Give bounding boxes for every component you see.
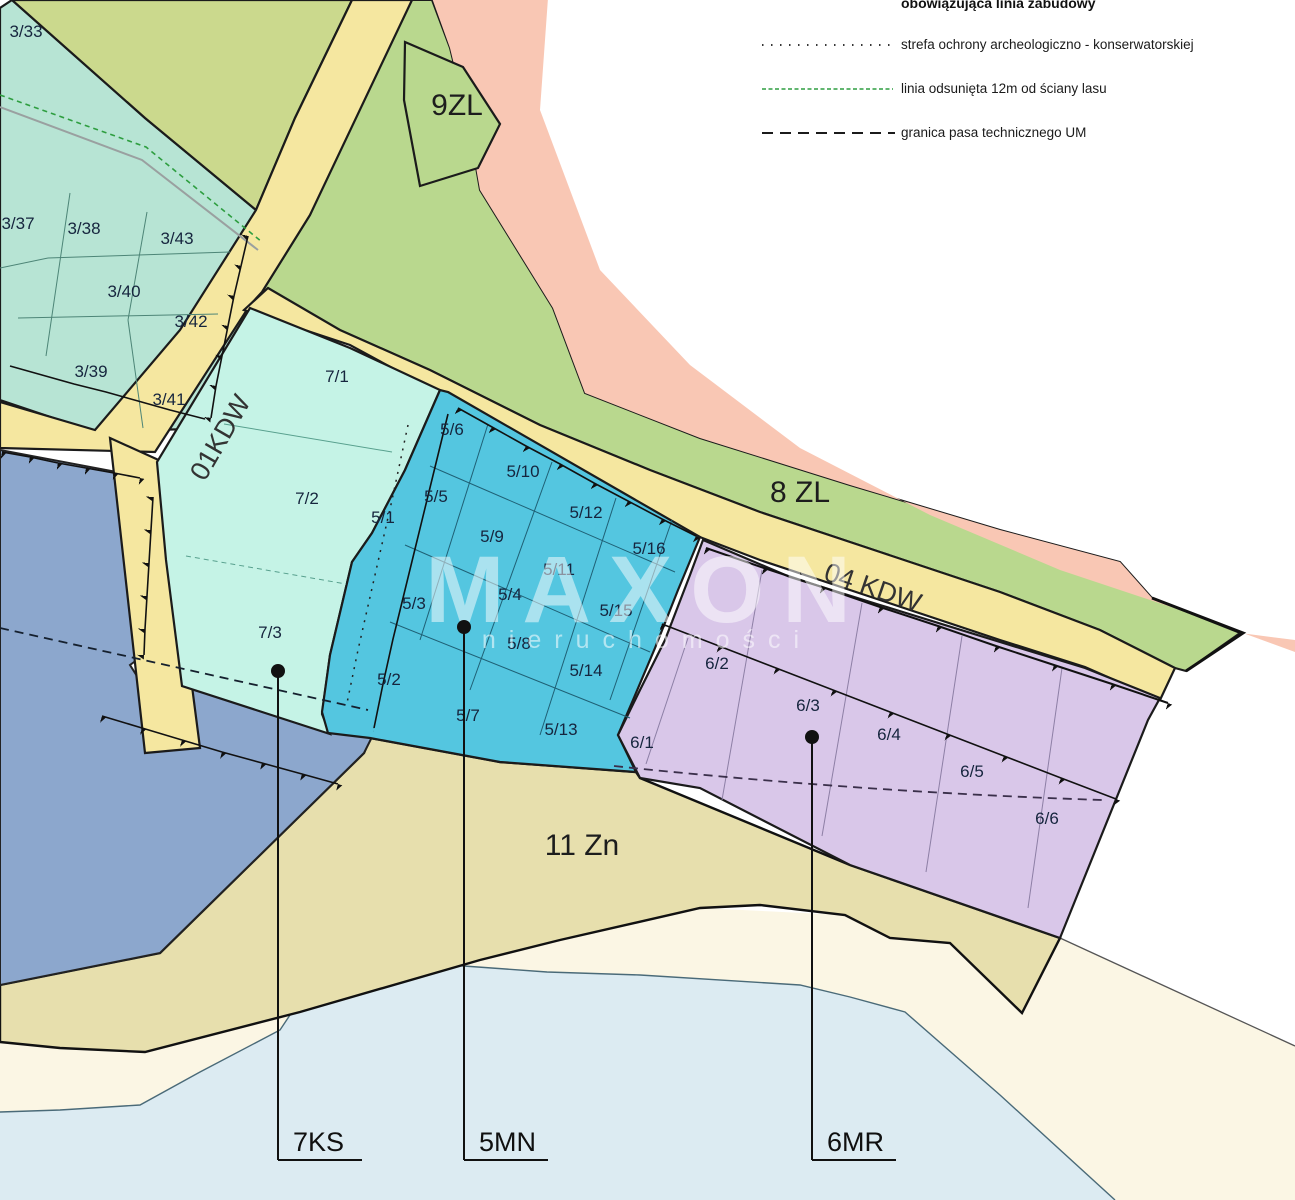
callout-dot (457, 620, 471, 634)
parcel-label: 5/12 (569, 503, 602, 522)
parcel-label: 5/1 (371, 508, 395, 527)
parcel-label: 7/1 (325, 367, 349, 386)
parcel-label: 3/42 (174, 312, 207, 331)
parcel-label: 6/5 (960, 762, 984, 781)
zone-label-9zl: 9ZL (431, 89, 483, 122)
parcel-label: 6/3 (796, 696, 820, 715)
watermark-subtitle: nieruchomości (482, 626, 812, 654)
parcel-label: 7/3 (258, 623, 282, 642)
parcel-label: 5/3 (402, 594, 426, 613)
parcel-label: 5/13 (544, 720, 577, 739)
parcel-label: 5/2 (377, 670, 401, 689)
parcel-label: 6/4 (877, 725, 901, 744)
parcel-label: 5/7 (456, 706, 480, 725)
zone-callout-label: 7KS (293, 1127, 344, 1157)
parcel-label: 6/6 (1035, 809, 1059, 828)
parcel-label: 7/2 (295, 489, 319, 508)
parcel-label: 6/2 (705, 654, 729, 673)
zone-callout-label: 6MR (827, 1127, 884, 1157)
parcel-label: 6/1 (630, 733, 654, 752)
zone-callout-label: 5MN (479, 1127, 536, 1157)
parcel-label: 3/38 (67, 219, 100, 238)
legend-item-archaeological-label: strefa ochrony archeologiczno - konserwa… (901, 37, 1194, 52)
zone-label-8zl: 8 ZL (770, 476, 830, 509)
parcel-label: 3/33 (9, 22, 42, 41)
parcel-label: 3/40 (107, 282, 140, 301)
parcel-label: 3/37 (1, 214, 34, 233)
callout-dot (805, 730, 819, 744)
parcel-label: 5/6 (440, 420, 464, 439)
legend-item-technical-strip-label: granica pasa technicznego UM (901, 125, 1086, 140)
watermark: MAXON nieruchomości (425, 537, 869, 654)
parcel-label: 5/14 (569, 661, 602, 680)
callout-dot (271, 664, 285, 678)
legend-item-forest-offset-label: linia odsunięta 12m od ściany lasu (901, 81, 1107, 96)
legend-item-building-line-label: obowiązująca linia zabudowy (901, 0, 1096, 11)
parcel-label: 5/10 (506, 462, 539, 481)
parcel-label: 3/39 (74, 362, 107, 381)
parcel-label: 5/5 (424, 487, 448, 506)
zoning-plan-map: 9ZL 8 ZL 11 Zn 01KDW 04 KDW 3/333/373/38… (0, 0, 1295, 1200)
parcel-label: 3/41 (152, 390, 185, 409)
zone-label-11zn: 11 Zn (545, 829, 620, 862)
parcel-label: 3/43 (160, 229, 193, 248)
